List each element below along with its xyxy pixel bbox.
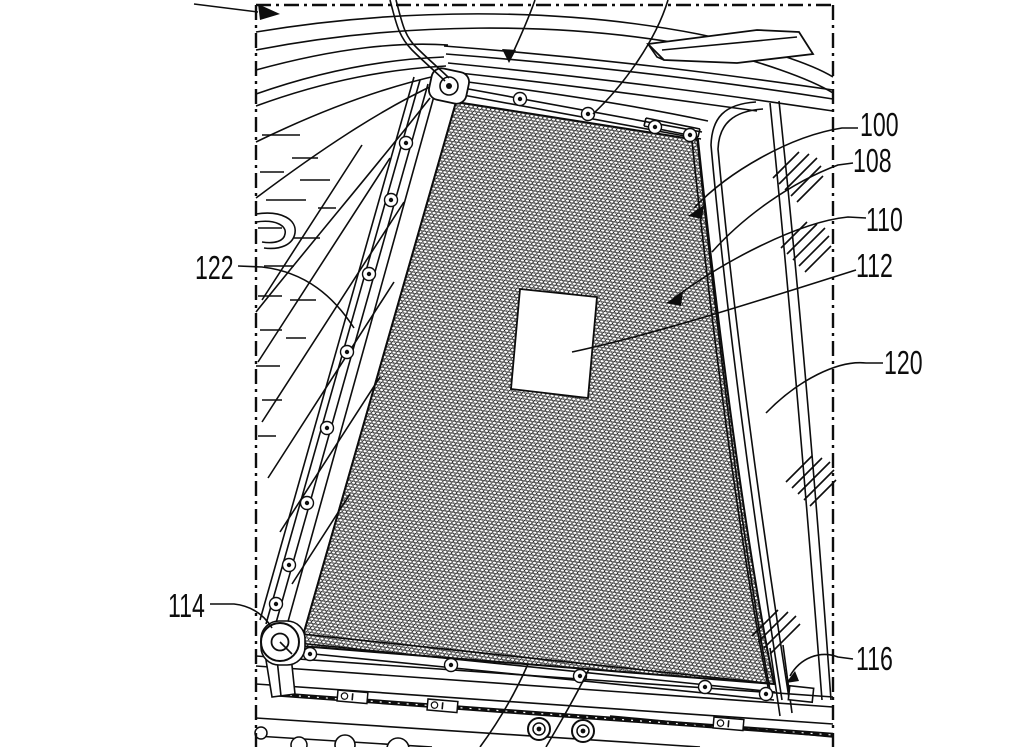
ref-label-112: 112 bbox=[856, 249, 893, 282]
ref-label-120: 120 bbox=[884, 346, 923, 379]
glass-hatching bbox=[752, 152, 836, 654]
rail-clip bbox=[427, 699, 458, 713]
leader-arrow-top bbox=[502, 49, 516, 63]
ref-label-116: 116 bbox=[856, 642, 893, 675]
ref-label-100: 100 bbox=[860, 108, 899, 141]
rail-clip bbox=[713, 717, 744, 731]
patent-figure: 100 108 110 112 120 116 122 114 bbox=[0, 0, 1024, 747]
rail-clip bbox=[337, 690, 368, 704]
rail-bolt bbox=[528, 718, 550, 740]
ref-label-108: 108 bbox=[853, 144, 892, 177]
ref-label-114: 114 bbox=[168, 589, 205, 622]
grab-handle bbox=[256, 213, 295, 248]
screen-label-patch bbox=[511, 289, 597, 398]
leader-120 bbox=[766, 363, 883, 413]
ref-label-110: 110 bbox=[866, 203, 903, 236]
ref-label-122: 122 bbox=[195, 251, 234, 284]
rail-bolt bbox=[572, 720, 594, 742]
section-arrow-icon bbox=[194, 4, 280, 20]
